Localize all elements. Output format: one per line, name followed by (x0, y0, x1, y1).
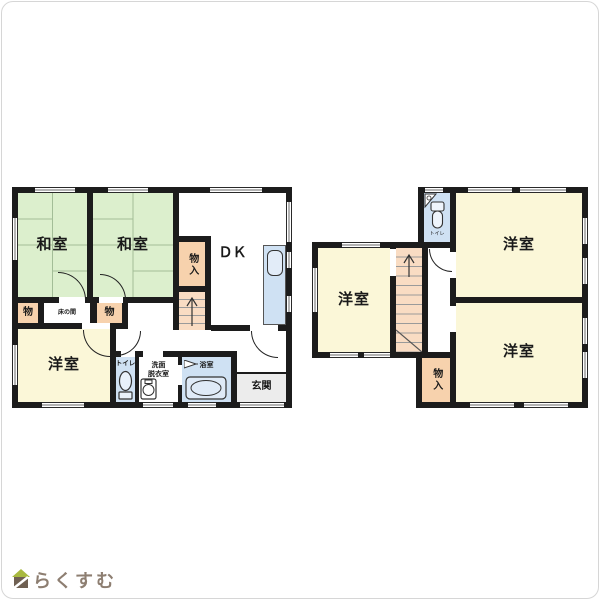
window (470, 402, 514, 408)
svg-text:トイレ: トイレ (429, 231, 444, 237)
room-label: 和室 (18, 236, 87, 254)
sink-icon (140, 378, 158, 401)
window (524, 402, 568, 408)
f1-wall (18, 323, 82, 329)
house-logo-icon (11, 567, 31, 589)
f1-wall (179, 286, 205, 292)
room-label: 物入 (427, 363, 445, 397)
room-label: 脱衣室 (139, 370, 178, 380)
window (42, 402, 84, 408)
room-label: 洋室 (318, 291, 390, 309)
window (330, 352, 358, 358)
room-label: 玄関 (237, 380, 286, 394)
window (582, 318, 588, 344)
room-label: 浴室 (182, 361, 231, 371)
f1-wall (163, 351, 237, 357)
f1-wall (90, 303, 97, 323)
window (582, 258, 588, 284)
window (188, 402, 216, 408)
window (425, 187, 443, 193)
stairs-up-arrow-icon (403, 251, 415, 279)
room-label: 床の間 (44, 305, 90, 321)
entrance-door (240, 402, 284, 408)
window (364, 352, 390, 358)
f1-wall (173, 193, 179, 330)
toilet-icon (116, 369, 135, 401)
f1-wall (178, 385, 182, 402)
window (35, 187, 75, 193)
window (468, 187, 512, 193)
room-label: 物 (97, 304, 122, 322)
window (210, 187, 262, 193)
f2-door-gap (390, 249, 396, 276)
bathtub-icon (185, 376, 227, 400)
window (143, 402, 173, 408)
window (342, 242, 380, 248)
window (582, 218, 588, 244)
window (286, 296, 292, 312)
logo-text: らくすむ (33, 567, 117, 593)
room-label: 和室 (93, 236, 173, 254)
room-label: ＤＫ (205, 243, 260, 261)
room-label: 洋室 (456, 236, 582, 254)
window (520, 187, 566, 193)
f1-genkan-step-line (237, 372, 286, 374)
stairs-up-arrow-icon (186, 294, 198, 328)
window (108, 187, 148, 193)
room-label: トイレ (115, 359, 136, 369)
window (582, 352, 588, 378)
f1-wall (278, 325, 286, 331)
window (286, 252, 292, 268)
floorplan-image: 和室 和室 ＤＫ 物入 物 床の間 物 洋室 トイレ 洗面 脱衣室 浴室 玄関 (0, 0, 600, 600)
room-label: 洋室 (18, 356, 110, 374)
room-label: 洋室 (456, 343, 582, 361)
room-label: 物 (18, 304, 38, 322)
toilet-icon: トイレ (424, 193, 450, 242)
kitchen-sink-icon (267, 250, 283, 276)
f2-door-gap (450, 306, 456, 332)
window (286, 202, 292, 242)
room-label: 物入 (183, 248, 201, 282)
f1-wall (122, 303, 128, 323)
f1-wall (211, 325, 250, 331)
stairs-diagonal-line (396, 328, 422, 352)
